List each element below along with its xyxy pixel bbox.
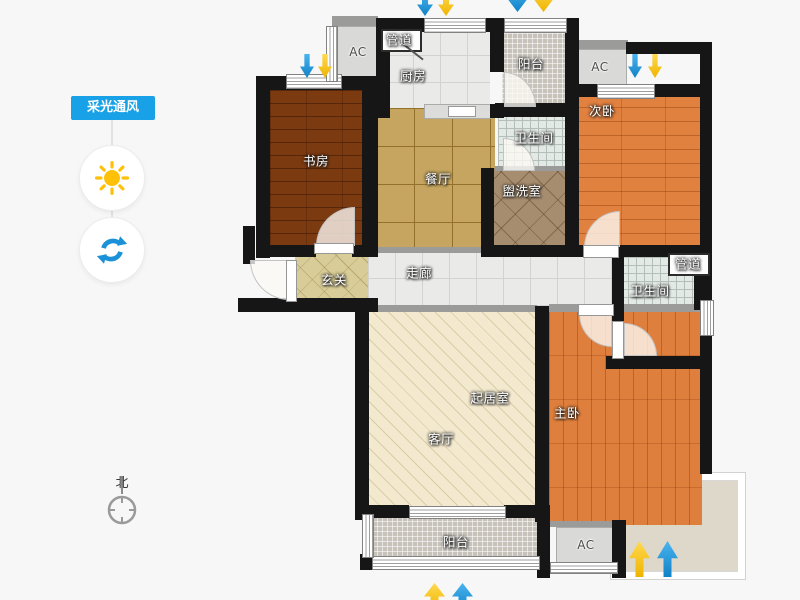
door-leaf-master	[578, 304, 614, 316]
floorplan-viewer: 采光通风 北	[0, 0, 800, 600]
wall-segment	[243, 226, 255, 264]
light-arrow-down-yellow-icon	[534, 0, 553, 12]
wall-segment	[481, 168, 494, 257]
door-leaf-entry	[286, 260, 297, 302]
room-label-master: 主卧	[554, 403, 580, 422]
light-arrow-up-yellow-icon	[424, 583, 445, 600]
partition-line	[357, 305, 537, 312]
window-kitchen	[424, 18, 486, 33]
kitchen-sink	[448, 106, 476, 117]
room-label-kitchen: 厨房	[400, 66, 426, 85]
door-arc-entry	[250, 260, 289, 300]
wall-segment	[352, 245, 378, 257]
wind-arrow-down-blue-icon	[628, 54, 642, 78]
compass-north-label: 北	[102, 476, 142, 492]
wind-arrow-down-blue-icon	[417, 0, 433, 16]
window-ac-bottom	[550, 562, 618, 574]
light-arrow-down-yellow-icon	[648, 54, 662, 78]
partition-line	[549, 304, 702, 312]
label-duct-top: 管道	[386, 30, 412, 49]
room-label-bath-top: 卫生间	[514, 128, 553, 147]
room-label-entry: 玄关	[321, 270, 347, 289]
room-label-living-alt: 客厅	[428, 429, 454, 448]
wall-segment	[256, 245, 316, 257]
label-ac-top-right: AC	[591, 60, 608, 74]
wall-segment	[565, 84, 599, 97]
window-balcony-bottom	[372, 556, 540, 570]
wall-segment	[490, 18, 504, 72]
window-bath-right	[700, 300, 714, 336]
window-balcony-top	[504, 18, 567, 33]
label-ac-bottom: AC	[577, 538, 594, 552]
room-label-bath-right: 卫生间	[630, 281, 669, 300]
door-leaf-bedroom2	[583, 245, 619, 258]
partition-line	[572, 40, 628, 49]
room-label-balcony-top: 阳台	[518, 54, 544, 73]
room-label-dining: 餐厅	[425, 169, 451, 188]
sun-icon	[92, 158, 132, 198]
partition-line	[332, 16, 378, 26]
room-label-corridor: 走廊	[406, 263, 432, 282]
room-label-study: 书房	[303, 151, 329, 170]
window-bedroom2	[597, 84, 655, 99]
refresh-rotate-button[interactable]	[79, 217, 145, 283]
wall-segment	[565, 97, 579, 257]
label-ac-top-left: AC	[349, 45, 366, 59]
door-leaf-bath-right	[612, 321, 624, 359]
wall-segment	[483, 245, 585, 257]
label-duct-right: 管道	[675, 254, 701, 273]
refresh-icon	[95, 233, 129, 267]
room-label-bedroom2: 次卧	[589, 101, 615, 120]
lighting-ventilation-toggle[interactable]: 采光通风	[71, 96, 155, 120]
window-ac-left	[326, 26, 338, 82]
wind-arrow-down-blue-icon	[508, 0, 527, 12]
sunlight-button[interactable]	[79, 145, 145, 211]
floor-living	[369, 311, 537, 511]
wall-segment	[535, 306, 549, 522]
wind-arrow-up-blue-icon	[452, 583, 473, 600]
compass-dial-icon	[104, 492, 140, 528]
room-label-washroom: 盥洗室	[502, 181, 541, 200]
door-leaf-study	[314, 243, 354, 254]
room-label-living: 起居室	[470, 388, 509, 407]
wall-segment	[256, 76, 270, 258]
room-label-balcony-bottom: 阳台	[443, 532, 469, 551]
light-arrow-down-yellow-icon	[438, 0, 454, 16]
wall-segment	[355, 306, 369, 520]
wall-segment	[504, 505, 537, 518]
partition-line	[378, 247, 495, 253]
window-living-balcony	[409, 506, 506, 519]
window-balcony-left	[362, 514, 374, 558]
compass: 北	[102, 476, 142, 534]
